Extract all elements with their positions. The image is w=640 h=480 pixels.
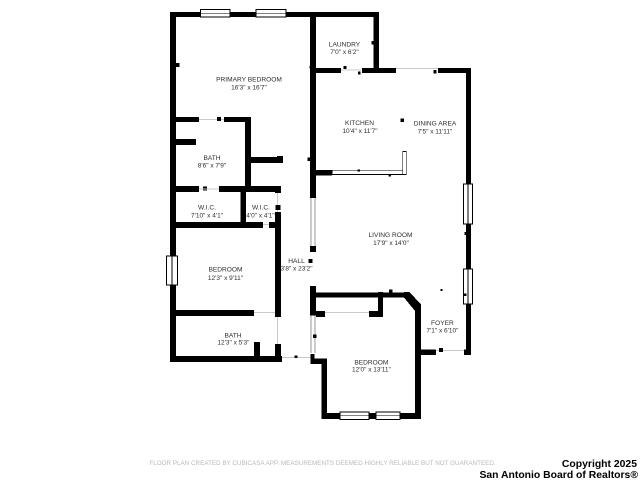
svg-text:W.I.C.: W.I.C. [252,205,270,212]
svg-text:Copyright 2025: Copyright 2025 [562,459,637,470]
svg-text:HALL: HALL [288,258,305,265]
svg-text:10'4" x 11'7": 10'4" x 11'7" [342,128,378,135]
svg-text:FLOOR PLAN CREATED BY CUBICASA: FLOOR PLAN CREATED BY CUBICASA APP. MEAS… [149,460,496,467]
svg-text:KITCHEN: KITCHEN [345,120,374,127]
svg-text:FOYER: FOYER [431,320,454,327]
svg-text:16'3" x 16'7": 16'3" x 16'7" [231,85,267,92]
svg-text:12'3" x 9'11": 12'3" x 9'11" [208,275,244,282]
svg-text:8'6" x 7'9": 8'6" x 7'9" [198,163,227,170]
svg-text:DINING AREA: DINING AREA [414,121,457,128]
svg-text:4'0" x 4'1": 4'0" x 4'1" [246,212,275,219]
svg-text:7'5" x 11'11": 7'5" x 11'11" [418,128,453,135]
svg-text:7'10" x 4'1": 7'10" x 4'1" [191,212,224,219]
svg-text:BATH: BATH [203,155,220,162]
svg-text:7'0" x 6'2": 7'0" x 6'2" [330,49,359,56]
svg-text:BEDROOM: BEDROOM [354,359,388,366]
svg-text:3'8" x 23'2": 3'8" x 23'2" [280,266,313,273]
svg-text:PRIMARY BEDROOM: PRIMARY BEDROOM [216,77,282,84]
svg-text:7'1" x 6'10": 7'1" x 6'10" [426,328,459,335]
svg-text:San Antonio Board of Realtors®: San Antonio Board of Realtors® [479,470,638,480]
svg-text:12'3" x 5'3": 12'3" x 5'3" [217,340,250,347]
svg-text:17'9" x 14'0": 17'9" x 14'0" [373,240,409,247]
svg-text:W.I.C.: W.I.C. [198,205,216,212]
svg-text:LAUNDRY: LAUNDRY [329,42,361,49]
svg-text:LIVING ROOM: LIVING ROOM [369,232,413,239]
svg-text:BEDROOM: BEDROOM [208,267,242,274]
svg-text:BATH: BATH [224,332,241,339]
svg-text:12'0" x 13'11": 12'0" x 13'11" [352,367,391,374]
